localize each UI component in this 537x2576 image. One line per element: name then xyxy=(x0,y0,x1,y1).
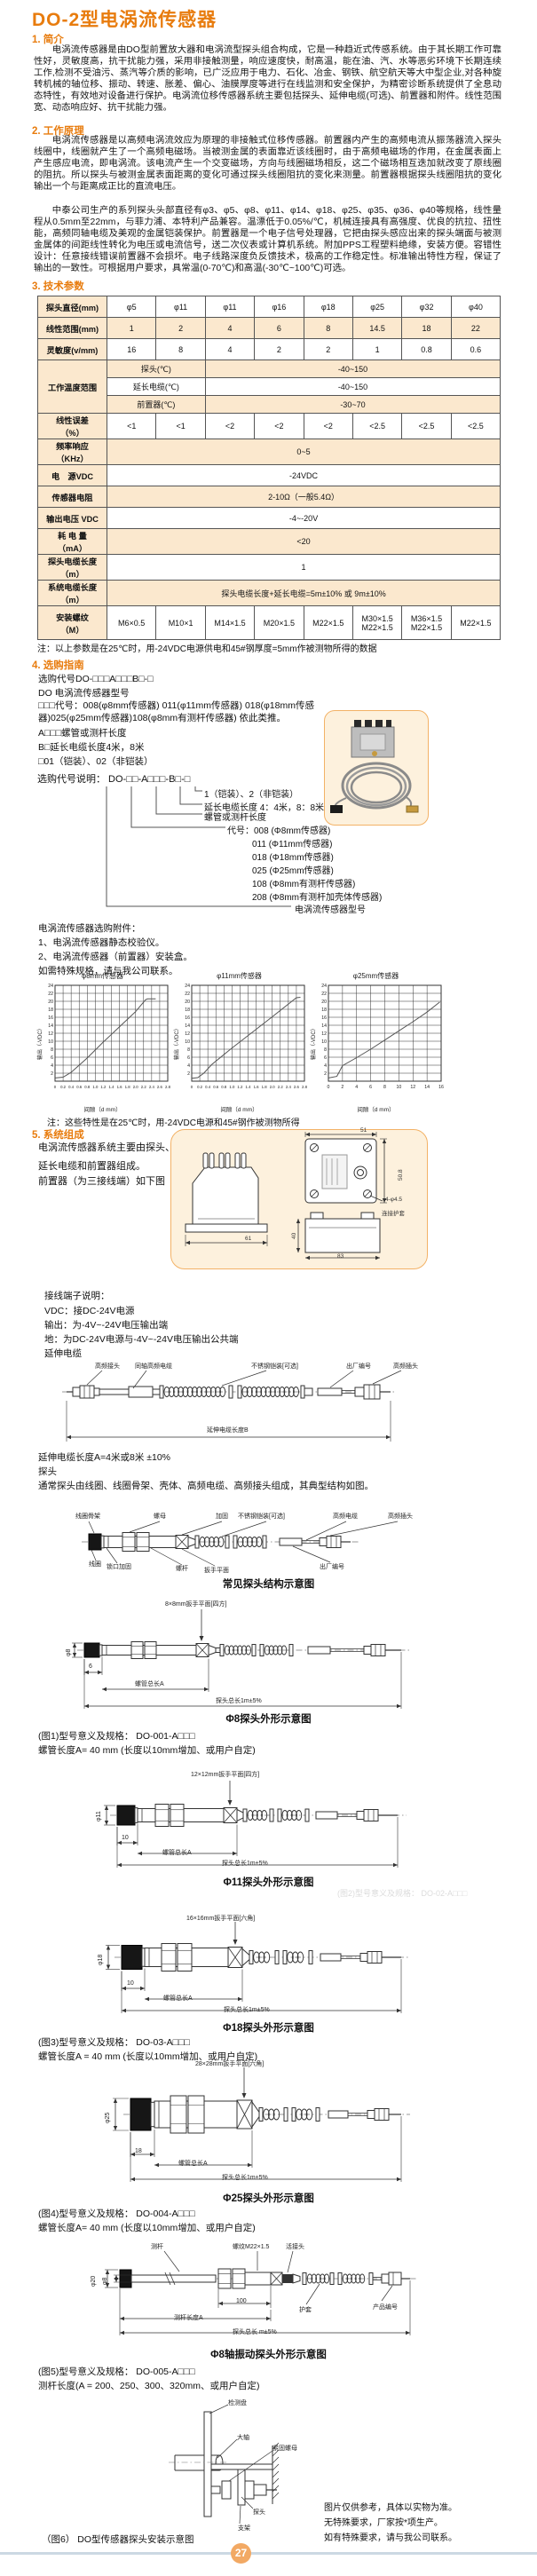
datasheet-page: DO-2型电涡流传感器 1. 简介 电涡流传感器是由DO型前置放大器和电涡流型探… xyxy=(0,0,537,2576)
x-tick-label: 1.2 xyxy=(237,1085,243,1089)
ext-label-hf-connector: 高频接头 xyxy=(95,1362,120,1371)
y-tick-label: 4 xyxy=(324,1063,327,1069)
f11-dimA-label: 螺管总长A xyxy=(162,1848,192,1857)
sensor-product-photo xyxy=(325,711,428,825)
tree-label-armor: 1（铠装）、2（非铠装） xyxy=(204,786,298,800)
x-tick-label: 2.4 xyxy=(286,1085,292,1089)
chart-phi8-xlabel: 间隙（d mm） xyxy=(34,1104,171,1113)
ps-armor: 不锈钢铠装[可选] xyxy=(238,1512,285,1521)
spec-cell: <2.5 xyxy=(451,414,500,439)
y-tick-label: 18 xyxy=(321,1007,327,1013)
f18-dimA-label: 螺管总长A xyxy=(163,1994,193,2003)
spec-cell: 18 xyxy=(402,318,451,339)
f8-wrench-label: 8×8mm扳手平面[四方] xyxy=(165,1600,226,1608)
y-tick-label: 10 xyxy=(48,1039,53,1045)
chart-phi11-xlabel: 间隙（d mm） xyxy=(170,1104,308,1113)
probe-desc: 通常探头由线圈、线圈骨架、壳体、高频电缆、高频接头组成，其典型结构如图。 xyxy=(38,1479,374,1492)
x-tick-label: 1.8 xyxy=(262,1085,268,1089)
preamp-sheath-label: 连接护套 xyxy=(382,1208,405,1217)
chart-phi8-plot: 00.20.40.60.81.01.21.41.61.82.02.22.42.6… xyxy=(34,982,171,1104)
spec-cell: φ5 xyxy=(107,296,156,318)
y-tick-label: 6 xyxy=(324,1055,327,1061)
x-tick-label: 0.4 xyxy=(68,1085,75,1089)
fv-dimA-label: 测杆长度A xyxy=(174,2313,203,2322)
chart-phi11: φ11mm传感器 输出（-VDC） 00.20.40.60.81.01.21.4… xyxy=(170,971,308,1113)
chart-phi11-plot: 00.20.40.60.81.01.21.41.61.82.02.22.42.6… xyxy=(170,982,308,1104)
spec-row-label: 探头直径(mm) xyxy=(38,296,107,318)
x-tick-label: 1.6 xyxy=(254,1085,260,1089)
y-tick-label: 8 xyxy=(324,1047,327,1053)
f11-total-label: 探头总长1m±5% xyxy=(222,1859,268,1868)
y-tick-label: 24 xyxy=(321,984,327,989)
accessory-1: 1、电涡流传感器静态校验仪。 xyxy=(38,936,164,949)
section1-body: 电涡流传感器是由DO型前置放大器和电涡流型探头组合构成，它是一种趋近式传感系统。… xyxy=(34,44,501,114)
section2-body1: 电涡流传感器是以高频电涡流效应为原理的非接触式位移传感器。前置器内产生的高频电流… xyxy=(34,135,501,193)
x-tick-label: 0.6 xyxy=(76,1085,83,1089)
product-photo-panel xyxy=(324,710,429,826)
phi11-probe-drawing xyxy=(0,1766,537,1877)
page-title: DO-2型电涡流传感器 xyxy=(32,5,217,32)
y-tick-label: 20 xyxy=(321,1000,327,1005)
ps-coil-frame: 线圈骨架 xyxy=(75,1512,100,1521)
spec-cell: 延长电缆(℃) xyxy=(107,378,206,396)
spec-cell: 8 xyxy=(304,318,352,339)
x-tick-label: 2.0 xyxy=(133,1085,139,1089)
y-tick-label: 14 xyxy=(48,1023,53,1029)
y-tick-label: 18 xyxy=(185,1007,190,1013)
x-tick-label: 8 xyxy=(383,1085,386,1090)
ps-reinforce: 加固 xyxy=(216,1512,228,1521)
y-tick-label: 12 xyxy=(48,1031,53,1037)
footer-note-2: 无特殊要求，厂家按*项生产。 xyxy=(324,2515,443,2528)
spec-cell: <2.5 xyxy=(352,414,401,439)
y-tick-label: 8 xyxy=(51,1047,53,1053)
fv-sheath-label: 护套 xyxy=(299,2305,312,2314)
x-tick-label: 2 xyxy=(341,1085,344,1090)
spec-cell: <2 xyxy=(255,414,304,439)
spec-row-label: 线性误差 （%） xyxy=(38,414,107,439)
spec-row-label: 传感器电阻 xyxy=(38,486,107,508)
spec-row-label: 频率响应 （KHz） xyxy=(38,439,107,465)
order-line-4: A□□□螺管或测杆长度 xyxy=(38,726,127,739)
order-code-line: 选购代号DO-□□□A□□□B□-□ xyxy=(38,672,154,685)
spec-cell: -4~-20V xyxy=(107,508,501,529)
f25-total-label: 探头总长1m±5% xyxy=(222,2173,268,2182)
x-tick-label: 1.4 xyxy=(109,1085,115,1089)
ext-label-serial: 出厂编号 xyxy=(346,1362,371,1371)
tree-label-code208: 208 (Φ8mm有测杆加壳体传感器) xyxy=(252,889,382,903)
y-tick-label: 8 xyxy=(187,1047,190,1053)
y-tick-label: 18 xyxy=(48,1007,53,1013)
spec-cell: -40~150 xyxy=(205,378,500,396)
x-tick-label: 0 xyxy=(328,1085,330,1090)
y-tick-label: 20 xyxy=(185,1000,190,1005)
x-tick-label: 16 xyxy=(438,1085,444,1090)
chart-phi11-title: φ11mm传感器 xyxy=(170,971,308,982)
f18-model: (图3)型号意义及规格： DO-03-A□□□ xyxy=(38,2035,190,2049)
x-tick-label: 6 xyxy=(369,1085,372,1090)
ext-label-hf-plug: 高频插头 xyxy=(393,1362,418,1371)
x-tick-label: 0.6 xyxy=(213,1085,219,1089)
x-tick-label: 0.2 xyxy=(60,1085,67,1089)
chart-phi25-plot: 024681012141624681012141618202224 xyxy=(307,982,445,1104)
y-tick-label: 22 xyxy=(321,992,327,997)
ps-lock: 锁口加固 xyxy=(107,1562,131,1571)
y-tick-label: 24 xyxy=(185,984,190,989)
spec-cell: φ18 xyxy=(304,296,352,318)
bottom-rule xyxy=(0,2552,537,2555)
fig6-caption: （图6） DO型传感器探头安装示意图 xyxy=(42,2533,194,2546)
f8-caption: Φ8探头外形示意图 xyxy=(0,1711,537,1726)
preamp-dim-holes: 4-φ4.5 xyxy=(385,1197,402,1203)
install-disc-label: 检测盘 xyxy=(228,2398,247,2407)
ext-length-note: 延伸电缆长度A=4米或8米 ±10% xyxy=(38,1450,170,1464)
order-line-5: B□延长电缆长度4米，8米 xyxy=(38,740,145,754)
install-nut-label: 紧固螺母 xyxy=(272,2444,297,2453)
tree-label-length: 螺管或测杆长度 xyxy=(204,810,266,823)
f25-dimA-label: 螺管总长A xyxy=(178,2159,208,2168)
spec-row-label: 系统电缆长度 （m） xyxy=(38,581,107,606)
spec-row-label: 耗 电 量 （mA） xyxy=(38,529,107,555)
preamp-dim-508: 50.8 xyxy=(398,1169,404,1181)
phi18-probe-drawing xyxy=(0,1908,537,2033)
fv-total-label: 探头总长 m±5% xyxy=(233,2327,277,2336)
install-shaft-label: 大轴 xyxy=(237,2433,249,2442)
ext-label-coax: 同轴高频电缆 xyxy=(135,1362,172,1371)
spec-cell: <2 xyxy=(304,414,352,439)
spec-cell: 0.8 xyxy=(402,339,451,360)
terminal-gnd: 地：为DC-24V电源与-4V~-24V电压输出公共端 xyxy=(44,1332,239,1346)
x-tick-label: 0.8 xyxy=(221,1085,227,1089)
spec-row-label: 电 源VDC xyxy=(38,465,107,486)
x-tick-label: 1.8 xyxy=(125,1085,131,1089)
fv-rod-label: 测杆 xyxy=(151,2242,163,2251)
ps-nut: 螺母 xyxy=(154,1512,166,1521)
accessory-head: 电涡流传感器选购附件： xyxy=(38,921,141,935)
spec-cell: M6×0.5 xyxy=(107,606,156,640)
section3-heading: 3. 技术参数 xyxy=(32,279,84,293)
y-tick-label: 2 xyxy=(324,1071,327,1077)
spec-row-label: 输出电压 VDC xyxy=(38,508,107,529)
probe-head: 探头 xyxy=(38,1465,57,1478)
chart-phi25: φ25mm传感器 输出（-VDC） 0246810121416246810121… xyxy=(307,971,445,1113)
fv-serial-label: 产品编号 xyxy=(373,2303,398,2311)
s5-line2: 延长电缆和前置器组成。 xyxy=(38,1158,146,1173)
f18-total-label: 探头总长1m±5% xyxy=(224,2005,270,2014)
phi25-probe-drawing xyxy=(0,2055,537,2197)
x-tick-label: 0.4 xyxy=(205,1085,211,1089)
x-tick-label: 1.4 xyxy=(246,1085,252,1089)
preamp-dim-51: 51 xyxy=(360,1127,367,1134)
f8-tip-dim: 6 xyxy=(89,1663,92,1670)
y-tick-label: 12 xyxy=(185,1031,190,1037)
f25-wrench-label: 28×28mm扳手平面[六角] xyxy=(195,2059,264,2068)
y-tick-label: 22 xyxy=(48,992,53,997)
spec-cell: 1 xyxy=(352,339,401,360)
spec-cell: 22 xyxy=(451,318,500,339)
x-tick-label: 4 xyxy=(355,1085,358,1090)
order-line-3: □□□代号：008(φ8mm传感器) 011(φ11mm传感器) 018(φ18… xyxy=(38,700,322,724)
f25-length-note: 螺管长度A= 40 mm (长度以10mm增加、或用户自定) xyxy=(38,2221,256,2234)
s5-line1: 电涡流传感器系统主要由探头、 xyxy=(38,1140,175,1154)
tech-spec-table-host: 探头直径(mm)φ5φ11φ11φ16φ18φ25φ32φ40线性范围(mm)1… xyxy=(37,296,500,640)
install-bracket-label: 支架 xyxy=(238,2524,250,2533)
spec-cell: φ11 xyxy=(156,296,205,318)
spec-cell: φ25 xyxy=(352,296,401,318)
f11-tip-dim: 10 xyxy=(122,1835,129,1841)
spec-cell: φ16 xyxy=(255,296,304,318)
order-line-2: DO 电涡流传感器型号 xyxy=(38,686,130,699)
fv-caption: Φ8轴振动探头外形示意图 xyxy=(0,2347,537,2361)
spec-cell: 4 xyxy=(205,318,254,339)
y-tick-label: 6 xyxy=(51,1055,53,1061)
footer-note-1: 图片仅供参考，具体以实物为准。 xyxy=(324,2500,457,2513)
spec-cell: <2.5 xyxy=(402,414,451,439)
spec-cell: 14.5 xyxy=(352,318,401,339)
ps-wrench-flat: 扳手平面 xyxy=(204,1566,229,1575)
spec-cell: 2-10Ω（一般5.4Ω） xyxy=(107,486,501,508)
fv-dia8-label: φ8 xyxy=(102,2278,108,2285)
x-tick-label: 2.4 xyxy=(149,1085,155,1089)
f11-faint-model: (图2)型号意义及规格： DO-02-A□□□ xyxy=(337,1887,467,1899)
ps-hf-cable: 高频电缆 xyxy=(333,1512,358,1521)
tree-label-code011: 011 (Φ11mm传感器) xyxy=(252,836,332,849)
x-tick-label: 0 xyxy=(191,1085,193,1089)
y-tick-label: 16 xyxy=(185,1015,190,1021)
spec-row-label: 灵敏度(v/mm) xyxy=(38,339,107,360)
f8-model: (图1)型号意义及规格： DO-001-A□□□ xyxy=(38,1729,195,1742)
tree-label-model: 电涡流传感器型号 xyxy=(295,902,366,915)
spec-cell: M20×1.5 xyxy=(255,606,304,640)
spec-cell: 2 xyxy=(255,339,304,360)
spec-row-label: 探头电缆长度 （m） xyxy=(38,555,107,581)
tree-label-code008: 代号：008 (Φ8mm传感器) xyxy=(227,823,330,836)
spec-cell: <2 xyxy=(205,414,254,439)
x-tick-label: 1.2 xyxy=(100,1085,107,1089)
chart-phi25-xlabel: 间隙（d mm） xyxy=(307,1104,445,1113)
preamp-dim-61: 61 xyxy=(245,1236,251,1242)
tech-spec-table: 探头直径(mm)φ5φ11φ11φ16φ18φ25φ32φ40线性范围(mm)1… xyxy=(37,296,501,640)
y-tick-label: 4 xyxy=(187,1063,190,1069)
chart-phi8-title: φ8mm传感器 xyxy=(34,971,171,982)
x-tick-label: 2.6 xyxy=(294,1085,300,1089)
accessory-2: 2、电涡流传感器（前置器）安装盒。 xyxy=(38,950,193,963)
x-tick-label: 2.6 xyxy=(157,1085,163,1089)
y-tick-label: 24 xyxy=(48,984,53,989)
order-line-6: □01（铠装）、02（非铠装） xyxy=(38,755,153,768)
y-tick-label: 14 xyxy=(321,1023,327,1029)
fv-model: (图5)型号意义及规格： DO-005-A□□□ xyxy=(38,2365,195,2378)
spec-cell: 6 xyxy=(255,318,304,339)
y-tick-label: 16 xyxy=(48,1015,53,1021)
x-tick-label: 0 xyxy=(54,1085,57,1089)
spec-cell: M14×1.5 xyxy=(205,606,254,640)
spec-cell: φ11 xyxy=(205,296,254,318)
y-tick-label: 20 xyxy=(48,1000,53,1005)
spec-cell: M30×1.5 M22×1.5 xyxy=(352,606,401,640)
page-number-badge: 27 xyxy=(231,2543,251,2564)
spec-cell: 1 xyxy=(107,318,156,339)
x-tick-label: 1.0 xyxy=(92,1085,99,1089)
spec-cell: <1 xyxy=(156,414,205,439)
spec-row-label: 安装螺纹 （M） xyxy=(38,606,107,640)
chart-phi25-title: φ25mm传感器 xyxy=(307,971,445,982)
f8-dia-label: φ8 xyxy=(66,1649,72,1656)
preamp-dim-40: 40 xyxy=(291,1233,297,1239)
y-tick-label: 14 xyxy=(185,1023,190,1029)
spec-cell: 0.6 xyxy=(451,339,500,360)
fv-dia20-label: φ20 xyxy=(91,2276,97,2287)
x-tick-label: 1.0 xyxy=(229,1085,235,1089)
phi8-probe-drawing xyxy=(0,1598,537,1715)
x-tick-label: 0.8 xyxy=(84,1085,91,1089)
f11-wrench-label: 12×12mm扳手平面[四方] xyxy=(191,1770,259,1779)
spec-cell: M36×1.5 M22×1.5 xyxy=(402,606,451,640)
spec-cell: 2 xyxy=(156,318,205,339)
x-tick-label: 12 xyxy=(410,1085,415,1090)
tree-label-code025: 025 (Φ25mm传感器) xyxy=(252,863,334,876)
probe-structure-caption: 常见探头结构示意图 xyxy=(0,1576,537,1591)
chart-note: 注：这些特性是在25℃时，用-24VDC电源和45#钢作被测物所得 xyxy=(47,1115,300,1128)
spec-cell: 探头电缆长度+延长电缆=5m±10% 或 9m±10% xyxy=(107,581,501,606)
install-probe-label: 探头 xyxy=(253,2508,265,2517)
f25-caption: Φ25探头外形示意图 xyxy=(0,2191,537,2205)
f18-wrench-label: 16×16mm扳手平面[六角] xyxy=(186,1914,255,1923)
ext-label-armor: 不锈钢铠装[可选] xyxy=(251,1362,298,1371)
f25-model: (图4)型号意义及规格： DO-004-A□□□ xyxy=(38,2207,195,2220)
f18-dia-label: φ18 xyxy=(98,1955,104,1965)
fv-thread-label: 螺纹M22×1.5 xyxy=(233,2242,269,2251)
x-tick-label: 0.2 xyxy=(197,1085,203,1089)
terminal-head: 接线端子说明： xyxy=(44,1289,110,1302)
spec-cell: M22×1.5 xyxy=(451,606,500,640)
spec-cell: 16 xyxy=(107,339,156,360)
tree-label-code108: 108 (Φ8mm有测杆传感器) xyxy=(252,876,355,889)
y-tick-label: 22 xyxy=(185,992,190,997)
s5-line3: 前置器（为三接线端）如下图 xyxy=(38,1173,165,1188)
spec-cell: <1 xyxy=(107,414,156,439)
f8-length-note: 螺管长度A= 40 mm (长度以10mm增加、或用户自定) xyxy=(38,1743,256,1757)
ps-serial: 出厂编号 xyxy=(320,1562,344,1571)
terminal-out: 输出：为-4V~-24V电压输出端 xyxy=(44,1318,168,1331)
y-tick-label: 16 xyxy=(321,1015,327,1021)
y-tick-label: 10 xyxy=(321,1039,327,1045)
spec-cell: 探头(℃) xyxy=(107,360,206,378)
section2-body2: 中泰公司生产的系列探头头部直径有φ3、φ5、φ8、φ11、φ14、φ18、φ25… xyxy=(34,205,501,274)
x-tick-label: 10 xyxy=(396,1085,401,1090)
x-tick-label: 14 xyxy=(424,1085,430,1090)
table-note: 注：以上参数是在25℃时，用-24VDC电源供电和45#钢厚度=5mm作被测物所… xyxy=(37,641,377,654)
tree-label-code018: 018 (Φ18mm传感器) xyxy=(252,849,334,863)
f11-dia-label: φ11 xyxy=(96,1811,102,1821)
f18-caption: Φ18探头外形示意图 xyxy=(0,2020,537,2035)
y-tick-label: 2 xyxy=(187,1071,190,1077)
spec-cell: -30~70 xyxy=(205,396,500,414)
spec-cell: 8 xyxy=(156,339,205,360)
fv-union-label: 活接头 xyxy=(286,2242,304,2251)
spec-cell: φ32 xyxy=(402,296,451,318)
spec-row-label: 线性范围(mm) xyxy=(38,318,107,339)
x-tick-label: 2.2 xyxy=(141,1085,147,1089)
ps-hf-plug: 高频插头 xyxy=(388,1512,413,1521)
spec-cell: 4 xyxy=(205,339,254,360)
x-tick-label: 1.6 xyxy=(117,1085,123,1089)
spec-cell: 2 xyxy=(304,339,352,360)
f25-dia-label: φ25 xyxy=(105,2113,111,2123)
y-tick-label: 4 xyxy=(51,1063,53,1069)
spec-cell: M22×1.5 xyxy=(304,606,352,640)
f18-tip-dim: 10 xyxy=(127,1980,134,1987)
spec-cell: -24VDC xyxy=(107,465,501,486)
chart-phi8: φ8mm传感器 输出（-VDC） 00.20.40.60.81.01.21.41… xyxy=(34,971,171,1113)
spec-cell: φ40 xyxy=(451,296,500,318)
spec-cell: <20 xyxy=(107,529,501,555)
section4-heading: 4. 选购指南 xyxy=(32,658,84,672)
f8-dimA-label: 螺管总长A xyxy=(135,1679,164,1688)
y-tick-label: 6 xyxy=(187,1055,190,1061)
preamp-dim-83: 83 xyxy=(337,1253,344,1260)
f25-tip-dim: 18 xyxy=(135,2148,142,2154)
spec-cell: 1 xyxy=(107,555,501,581)
y-tick-label: 12 xyxy=(321,1031,327,1037)
spec-cell: 前置器(℃) xyxy=(107,396,206,414)
spec-row-label: 工作温度范围 xyxy=(38,360,107,414)
footer-note-3: 如有特殊要求，请与我公司联系。 xyxy=(324,2530,457,2543)
spec-cell: -40~150 xyxy=(205,360,500,378)
ps-screw: 螺杆 xyxy=(176,1564,188,1573)
ps-coil: 线圈 xyxy=(89,1560,101,1569)
x-tick-label: 2.0 xyxy=(270,1085,276,1089)
fv-length-note: 测杆长度(A = 200、250、300、320mm、或用户自定) xyxy=(38,2379,259,2392)
spec-cell: 0~5 xyxy=(107,439,501,465)
terminal-vdc: VDC：接DC-24V电源 xyxy=(44,1304,135,1317)
fv-100-dim: 100 xyxy=(236,2298,247,2304)
y-tick-label: 2 xyxy=(51,1071,53,1077)
ext-dim-b: 延伸电缆长度B xyxy=(207,1426,249,1434)
spec-cell: M10×1 xyxy=(156,606,205,640)
x-tick-label: 2.2 xyxy=(278,1085,284,1089)
y-tick-label: 10 xyxy=(185,1039,190,1045)
f8-total-label: 探头总长1m±5% xyxy=(216,1696,262,1705)
